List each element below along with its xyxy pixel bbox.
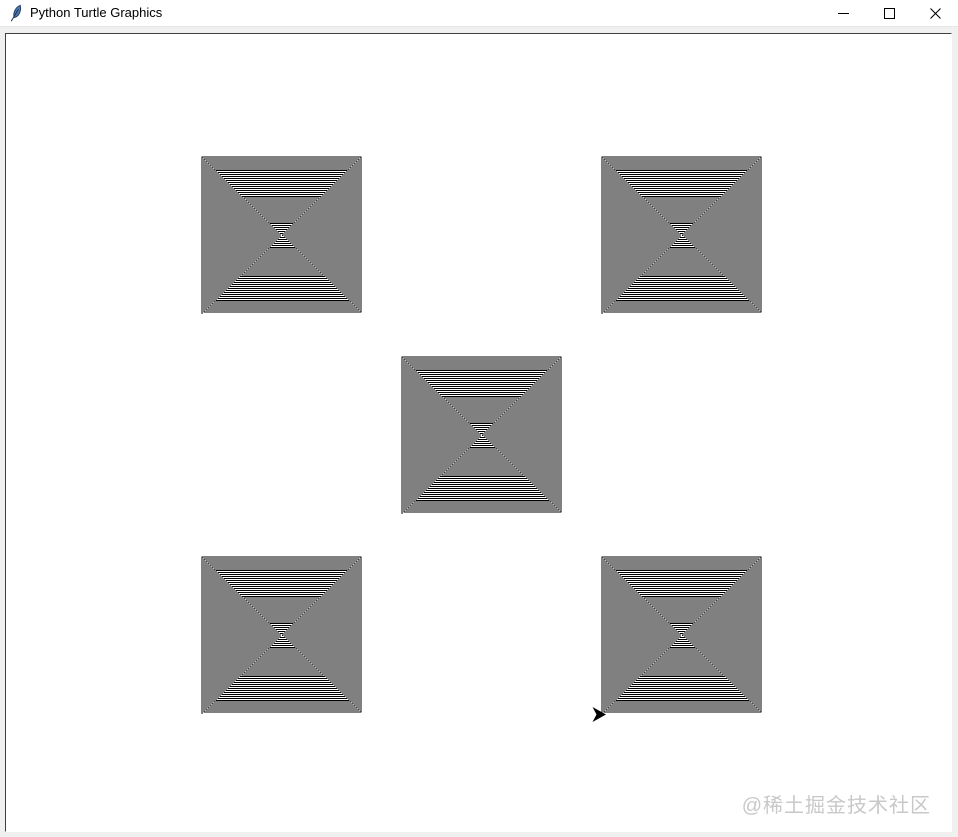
close-icon <box>929 7 942 20</box>
window-title: Python Turtle Graphics <box>30 0 162 26</box>
window-controls <box>820 0 958 27</box>
minimize-button[interactable] <box>820 0 866 26</box>
minimize-icon <box>838 13 849 14</box>
turtle-graphics-canvas <box>5 33 952 832</box>
maximize-button[interactable] <box>866 0 912 26</box>
tk-feather-icon <box>8 4 24 22</box>
title-bar[interactable]: Python Turtle Graphics <box>0 0 958 27</box>
close-button[interactable] <box>912 0 958 26</box>
maximize-icon <box>884 8 895 19</box>
